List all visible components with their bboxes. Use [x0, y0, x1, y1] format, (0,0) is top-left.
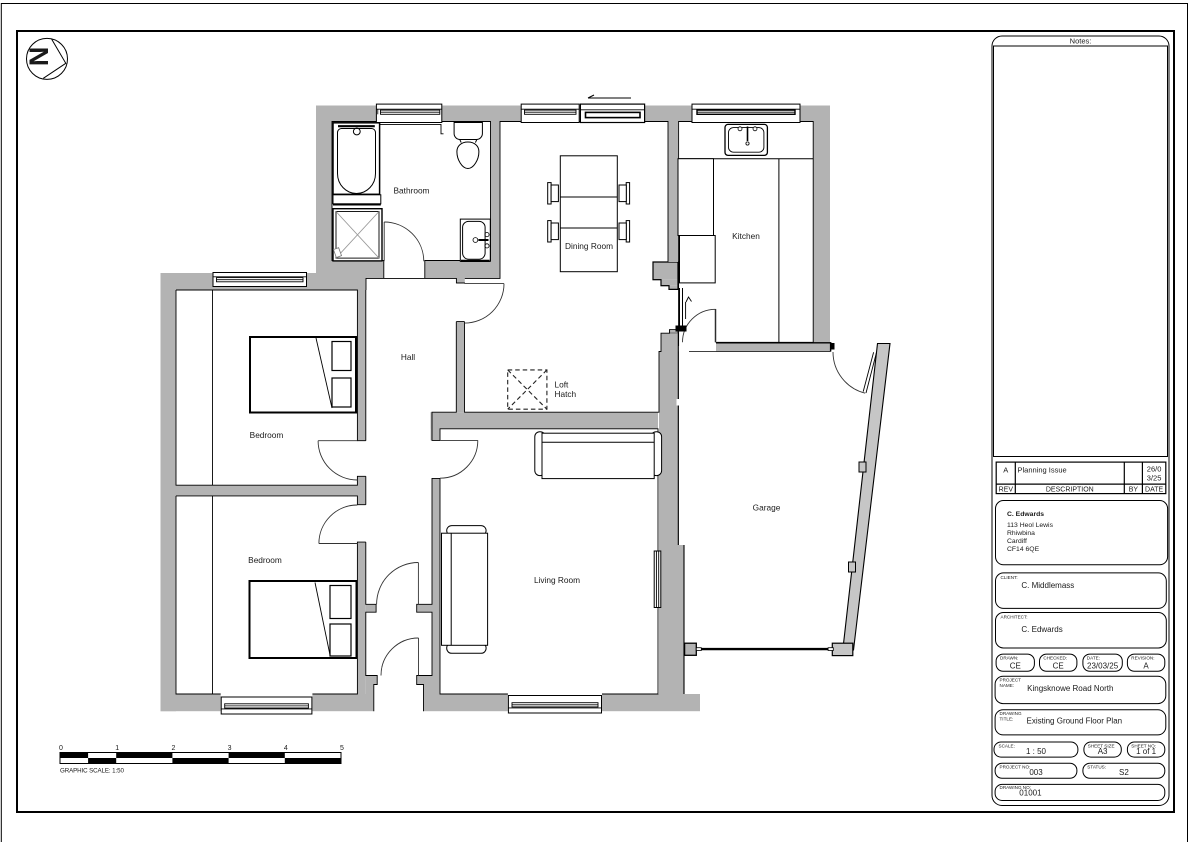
- svg-text:113 Heol Lewis: 113 Heol Lewis: [1007, 522, 1054, 529]
- svg-text:SCALE:: SCALE:: [999, 743, 1015, 748]
- svg-text:Existing Ground Floor Plan: Existing Ground Floor Plan: [1026, 717, 1122, 726]
- svg-text:Hall: Hall: [401, 352, 415, 362]
- svg-text:Notes:: Notes:: [1070, 37, 1092, 46]
- svg-text:N: N: [24, 47, 54, 67]
- svg-text:C. Middlemass: C. Middlemass: [1021, 581, 1074, 590]
- svg-text:S2: S2: [1119, 768, 1129, 777]
- svg-text:DATE: DATE: [1145, 487, 1163, 494]
- svg-text:C. Edwards: C. Edwards: [1021, 625, 1062, 634]
- svg-text:26/0: 26/0: [1147, 465, 1162, 474]
- svg-text:2: 2: [171, 745, 175, 752]
- svg-text:ARCHITECT:: ARCHITECT:: [1001, 615, 1028, 620]
- svg-text:GRAPHIC SCALE: 1:50: GRAPHIC SCALE: 1:50: [60, 768, 124, 775]
- svg-text:DRAWN:: DRAWN:: [1000, 656, 1018, 661]
- svg-text:1 : 50: 1 : 50: [1026, 747, 1047, 756]
- svg-text:5: 5: [340, 745, 344, 752]
- svg-text:REVISION:: REVISION:: [1131, 656, 1154, 661]
- svg-text:1 of 1: 1 of 1: [1136, 747, 1157, 756]
- svg-text:Garage: Garage: [753, 503, 781, 513]
- svg-text:Loft: Loft: [555, 380, 570, 390]
- svg-text:A: A: [1143, 662, 1149, 671]
- svg-text:A: A: [1003, 466, 1008, 475]
- svg-text:Kingsknowe Road North: Kingsknowe Road North: [1027, 684, 1113, 693]
- svg-text:Rhiwbina: Rhiwbina: [1007, 530, 1035, 537]
- svg-text:Cardiff: Cardiff: [1007, 538, 1027, 545]
- svg-text:DRAWING: DRAWING: [1000, 711, 1022, 716]
- svg-text:003: 003: [1029, 768, 1043, 777]
- svg-text:Dining Room: Dining Room: [565, 241, 613, 251]
- svg-text:1: 1: [115, 745, 119, 752]
- svg-text:Bedroom: Bedroom: [248, 555, 282, 565]
- svg-text:Planning Issue: Planning Issue: [1018, 466, 1067, 475]
- svg-text:01001: 01001: [1019, 789, 1042, 798]
- svg-text:4: 4: [284, 745, 288, 752]
- svg-text:3: 3: [228, 745, 232, 752]
- svg-text:23/03/25: 23/03/25: [1087, 662, 1119, 671]
- svg-text:DATE:: DATE:: [1087, 656, 1100, 661]
- svg-text:PROJECT: PROJECT: [1000, 678, 1022, 683]
- svg-text:NAME:: NAME:: [1000, 683, 1015, 688]
- svg-text:C. Edwards: C. Edwards: [1007, 511, 1044, 518]
- svg-text:TITLE:: TITLE:: [1000, 716, 1014, 721]
- svg-text:CF14 6QE: CF14 6QE: [1007, 546, 1040, 553]
- svg-text:CE: CE: [1053, 662, 1064, 671]
- svg-text:A3: A3: [1098, 747, 1108, 756]
- svg-text:0: 0: [59, 745, 63, 752]
- svg-text:PROJECT NO:: PROJECT NO:: [1000, 765, 1031, 770]
- svg-text:DESCRIPTION: DESCRIPTION: [1046, 487, 1094, 494]
- svg-text:REV: REV: [999, 487, 1014, 494]
- svg-text:Bathroom: Bathroom: [394, 186, 430, 196]
- svg-text:Kitchen: Kitchen: [732, 231, 760, 241]
- svg-text:CLIENT:: CLIENT:: [1001, 575, 1018, 580]
- svg-text:Living Room: Living Room: [534, 575, 580, 585]
- svg-text:STATUS:: STATUS:: [1087, 765, 1106, 770]
- svg-text:BY: BY: [1129, 487, 1139, 494]
- svg-text:Hatch: Hatch: [555, 389, 577, 399]
- svg-text:CE: CE: [1010, 662, 1021, 671]
- svg-text:3/25: 3/25: [1147, 474, 1162, 483]
- svg-text:Bedroom: Bedroom: [250, 430, 284, 440]
- svg-text:CHECKED:: CHECKED:: [1043, 656, 1067, 661]
